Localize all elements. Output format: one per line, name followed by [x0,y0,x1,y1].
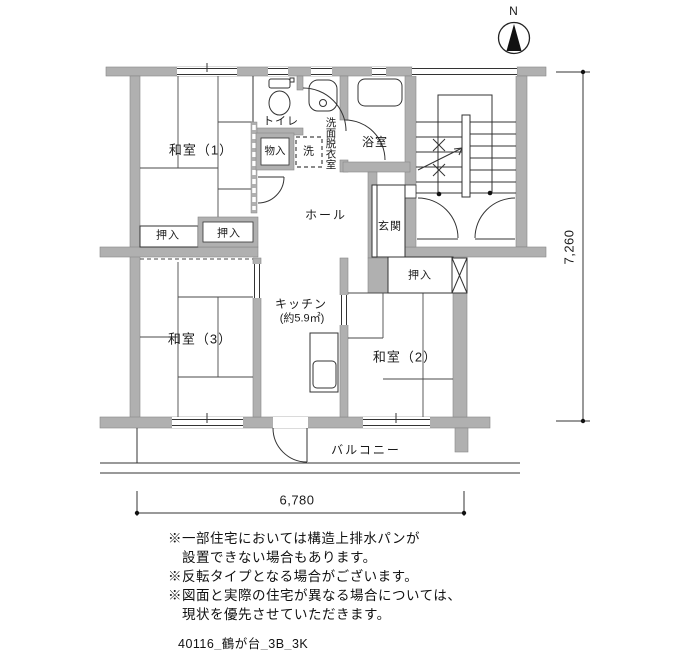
label-bath: 浴室 [362,136,388,148]
toilet-bowl [269,91,290,115]
balcony-door-gap [273,417,308,428]
staircase [416,95,516,197]
neighbor-entry-door-arc [475,198,515,238]
label-washroom: 洗面脱衣室 [324,117,335,170]
stair-dot-left [437,192,442,197]
toilet-handle [290,78,294,82]
stair-bottom-wall [405,247,546,257]
kitchen-east-wall [340,258,348,417]
kitchen-west-opening [252,264,262,298]
label-washitsu3: 和室（3） [168,333,232,346]
label-washitsu2: 和室（2） [373,351,437,364]
entrance-lower-wall [368,258,388,293]
note-line: ※図面と実際の住宅が異なる場合については、 [168,586,461,605]
washbasin-drain [320,100,327,107]
label-closet-1: 押入 [156,231,180,242]
label-washitsu1: 和室（1） [169,144,233,157]
bathtub [358,79,402,106]
bath-bottom-wall [343,162,410,172]
label-entrance: 玄関 [378,222,402,233]
toilet-separator-stub [297,76,303,90]
washroom-bath-wall-upper [340,76,348,120]
label-closet-3: 押入 [408,271,432,282]
top-wall-right [517,67,546,76]
label-height-dimension: 7,260 [563,229,576,264]
note-line: ※反転タイプとなる場合がございます。 [168,567,461,586]
label-kitchen-area: (約5.9㎡) [280,314,325,325]
notes-block: ※一部住宅においては構造上排水パンが 設置できない場合もあります。 ※反転タイプ… [168,529,461,624]
note-line: 現状を優先させていただきます。 [168,605,461,624]
label-toilet: トイレ [263,117,299,128]
label-laundry: 洗 [303,147,315,158]
label-storage: 物入 [265,146,286,157]
toilet-tank [269,79,290,88]
label-hall: ホール [305,209,347,221]
floor-plan-page: 和室（1） トイレ 洗面脱衣室 浴室 物入 洗 ホール 玄関 押入 押入 押入 … [0,0,700,650]
kitchen-east-opening [339,295,349,325]
label-width-dimension: 6,780 [279,494,314,507]
balcony-right-wall [455,428,468,452]
stair-rail [462,115,470,197]
kitchen-counter [310,333,338,392]
hall-door [258,177,284,203]
washroom-bath [309,79,402,160]
stairwell-doors [417,198,515,239]
stair-dot-right [488,191,493,196]
exterior-walls [100,67,546,452]
label-kitchen: キッチン [275,298,327,310]
label-closet-2: 押入 [217,229,241,240]
label-balcony: バルコニー [331,444,401,456]
plan-id: 40116_鶴が台_3B_3K [178,633,308,650]
stair-right-wall [516,76,527,247]
pipe-shaft [452,258,467,293]
closet-row-wall [100,247,258,257]
note-line: 設置できない場合もあります。 [168,548,461,567]
top-wall [106,67,412,76]
stair-left-wall [405,76,416,247]
balcony-door-arc [273,428,307,462]
compass [499,23,530,54]
kitchen-sink [313,361,336,388]
washitsu2-east-wall [453,293,467,417]
note-line: ※一部住宅においては構造上排水パンが [168,529,461,548]
label-compass-north: N [509,5,519,17]
unit-entry-door-arc [418,198,458,238]
